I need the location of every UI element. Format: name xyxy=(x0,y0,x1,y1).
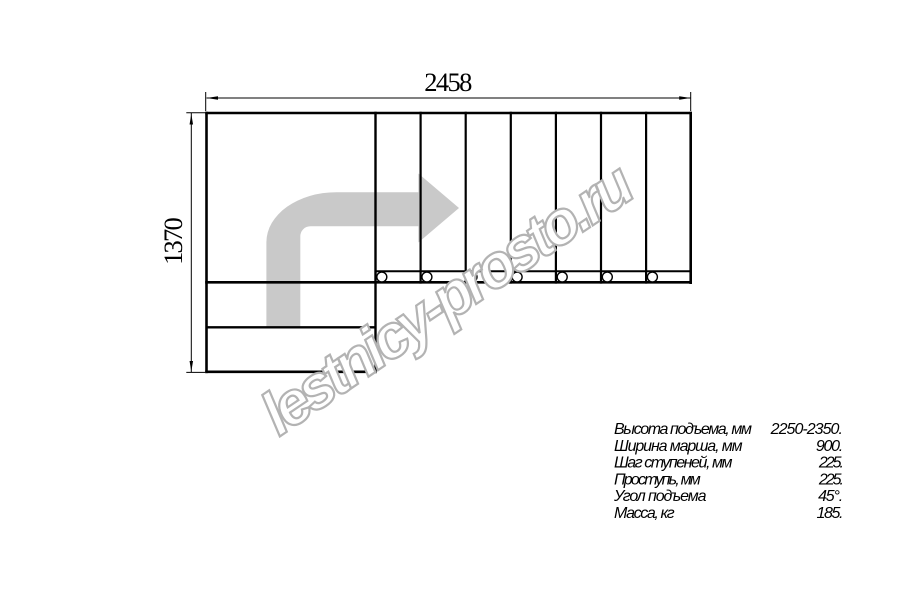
svg-text:1370: 1370 xyxy=(158,218,188,265)
svg-text:2458: 2458 xyxy=(424,67,472,97)
svg-text:Шаг ступеней, мм: Шаг ступеней, мм xyxy=(614,455,733,472)
svg-text:Проступь, мм: Проступь, мм xyxy=(614,471,701,488)
svg-text:900.: 900. xyxy=(816,438,842,455)
svg-text:45°.: 45°. xyxy=(818,488,842,505)
svg-text:Угол подъема: Угол подъема xyxy=(613,488,707,505)
svg-text:Масса, кг: Масса, кг xyxy=(614,505,675,522)
svg-text:225.: 225. xyxy=(818,471,843,488)
svg-text:225.: 225. xyxy=(818,455,843,472)
svg-text:Высота подъема, мм: Высота подъема, мм xyxy=(614,421,752,438)
svg-text:2250-2350.: 2250-2350. xyxy=(770,421,842,438)
svg-text:185.: 185. xyxy=(816,505,842,522)
svg-text:Ширина марша, мм: Ширина марша, мм xyxy=(614,438,743,455)
